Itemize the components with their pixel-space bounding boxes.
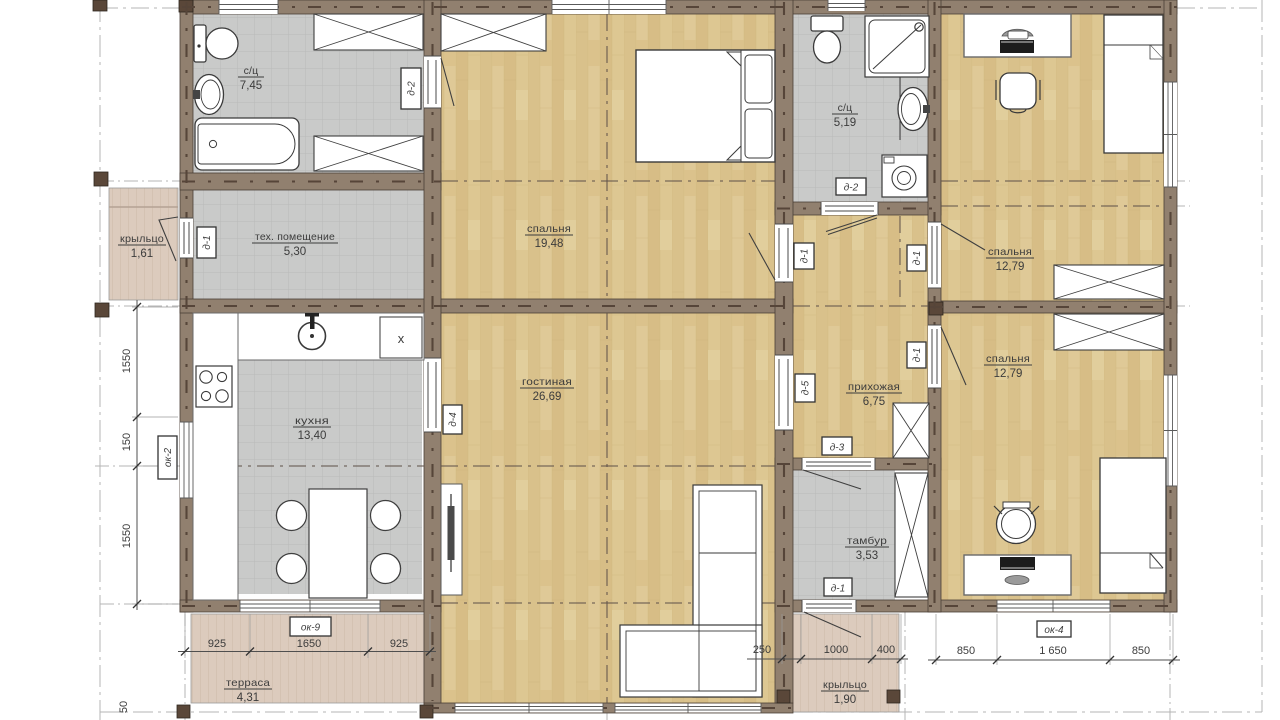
svg-text:крыльцо: крыльцо xyxy=(823,679,867,691)
svg-text:925: 925 xyxy=(390,638,408,650)
svg-text:925: 925 xyxy=(208,638,226,650)
svg-text:спальня: спальня xyxy=(988,246,1032,258)
svg-text:ок-9: ок-9 xyxy=(301,623,321,634)
svg-text:12,79: 12,79 xyxy=(996,261,1025,273)
svg-text:5,19: 5,19 xyxy=(834,117,856,129)
svg-text:6,75: 6,75 xyxy=(863,396,885,408)
svg-text:ок-4: ок-4 xyxy=(1044,625,1064,636)
svg-text:с/ц: с/ц xyxy=(838,102,853,114)
svg-text:5,30: 5,30 xyxy=(284,246,306,258)
svg-text:с/ц: с/ц xyxy=(244,65,259,77)
svg-text:400: 400 xyxy=(877,644,895,656)
svg-text:спальня: спальня xyxy=(986,353,1030,365)
svg-text:д-1: д-1 xyxy=(800,249,811,263)
svg-text:крыльцо: крыльцо xyxy=(120,233,164,245)
svg-text:д-1: д-1 xyxy=(202,235,213,249)
svg-text:x: x xyxy=(398,331,405,346)
svg-text:850: 850 xyxy=(1132,645,1150,657)
svg-text:д-3: д-3 xyxy=(830,443,845,454)
svg-text:1550: 1550 xyxy=(121,524,133,548)
svg-text:д-4: д-4 xyxy=(448,412,459,427)
svg-text:250: 250 xyxy=(753,644,771,656)
svg-text:д-5: д-5 xyxy=(801,380,812,395)
svg-text:д-2: д-2 xyxy=(844,183,859,194)
svg-text:тамбур: тамбур xyxy=(847,535,887,547)
svg-text:ок-2: ок-2 xyxy=(163,447,174,467)
svg-text:1,90: 1,90 xyxy=(834,694,856,706)
svg-text:1000: 1000 xyxy=(824,644,848,656)
svg-text:19,48: 19,48 xyxy=(535,238,564,250)
svg-text:12,79: 12,79 xyxy=(994,368,1023,380)
svg-text:д-1: д-1 xyxy=(912,251,923,265)
svg-text:гостиная: гостиная xyxy=(522,376,572,388)
svg-text:д-1: д-1 xyxy=(912,348,923,362)
svg-text:3,53: 3,53 xyxy=(856,550,878,562)
svg-text:1650: 1650 xyxy=(297,638,321,650)
svg-text:13,40: 13,40 xyxy=(298,430,327,442)
svg-text:терраса: терраса xyxy=(226,677,270,689)
svg-text:тех. помещение: тех. помещение xyxy=(255,231,335,243)
svg-text:д-1: д-1 xyxy=(831,584,845,595)
svg-text:1550: 1550 xyxy=(121,349,133,373)
svg-text:спальня: спальня xyxy=(527,223,571,235)
svg-text:1,61: 1,61 xyxy=(131,248,153,260)
svg-text:150: 150 xyxy=(121,433,133,451)
svg-text:850: 850 xyxy=(957,645,975,657)
svg-text:50: 50 xyxy=(118,701,130,713)
svg-text:26,69: 26,69 xyxy=(533,391,562,403)
svg-text:4,31: 4,31 xyxy=(237,692,259,704)
svg-text:1 650: 1 650 xyxy=(1039,645,1067,657)
svg-text:7,45: 7,45 xyxy=(240,80,262,92)
svg-text:прихожая: прихожая xyxy=(848,381,900,393)
svg-text:кухня: кухня xyxy=(295,415,329,427)
svg-text:д-2: д-2 xyxy=(407,81,418,96)
